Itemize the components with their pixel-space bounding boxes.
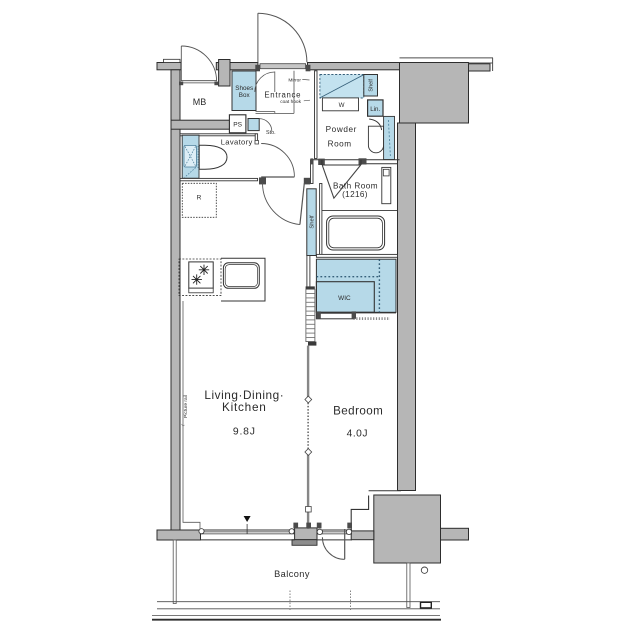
svg-text:MB: MB [193,97,207,107]
svg-text:R: R [197,195,202,202]
svg-text:Shelf: Shelf [310,215,316,229]
svg-text:Picture rail: Picture rail [183,395,189,418]
svg-text:Sto.: Sto. [266,130,276,136]
svg-text:WIC: WIC [338,295,351,302]
svg-text:(1216): (1216) [342,190,368,199]
svg-text:W: W [339,102,345,109]
svg-text:Shoes: Shoes [235,85,253,92]
svg-text:Lin.: Lin. [370,106,380,113]
svg-text:coat hook: coat hook [280,99,301,105]
svg-text:Bedroom: Bedroom [333,405,383,418]
svg-text:Mirror: Mirror [288,77,301,83]
svg-text:Entrance: Entrance [264,91,301,100]
svg-text:Balcony: Balcony [274,569,310,579]
svg-text:Room: Room [328,139,352,148]
svg-text:9.8J: 9.8J [233,426,256,437]
svg-text:Kitchen: Kitchen [222,400,267,414]
svg-text:4.0J: 4.0J [347,429,368,440]
svg-text:Powder: Powder [326,125,357,134]
svg-text:Box: Box [239,92,251,99]
svg-text:PS: PS [233,122,242,129]
svg-text:Shelf: Shelf [369,79,375,92]
svg-text:Lavatory: Lavatory [221,137,253,146]
